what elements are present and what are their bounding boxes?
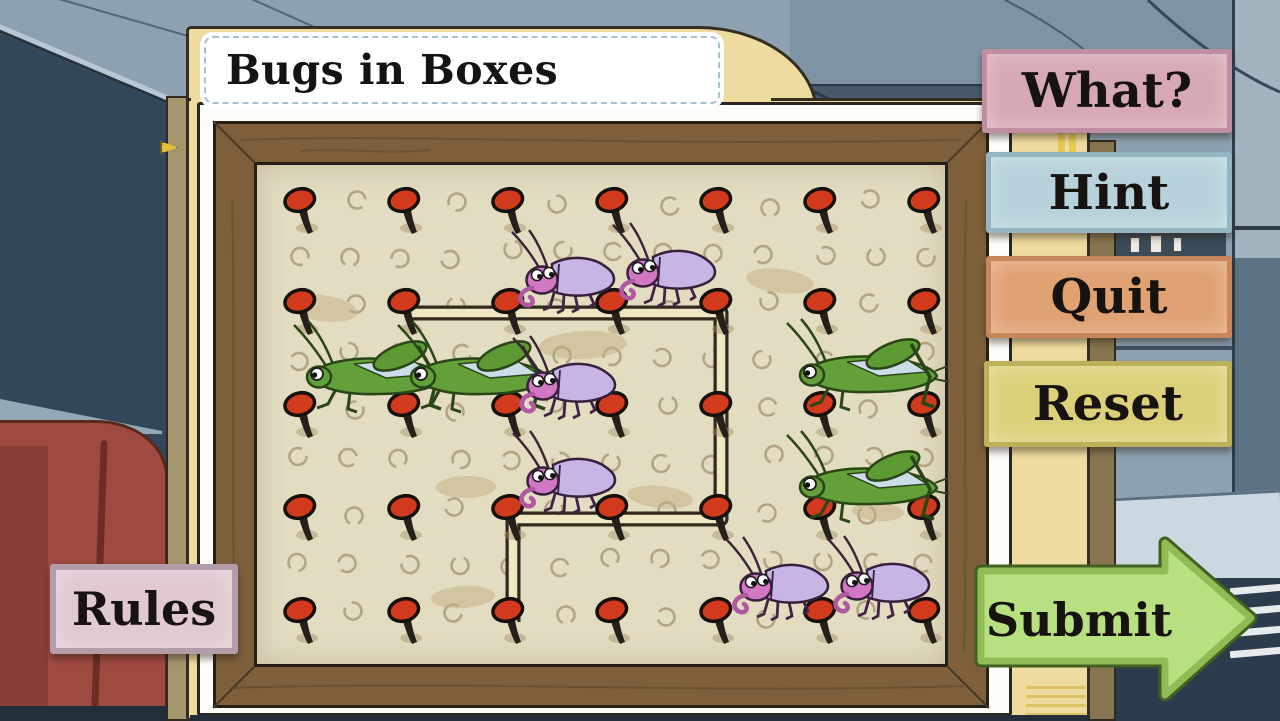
page-bottom-shadow bbox=[190, 715, 1090, 721]
wall-panel bbox=[1232, 258, 1280, 510]
shelf-tag bbox=[1150, 235, 1162, 253]
what-button[interactable]: What? bbox=[982, 49, 1232, 133]
rules-button-label: Rules bbox=[72, 582, 216, 636]
wall-panel bbox=[1232, 0, 1280, 262]
shelf-tag bbox=[1130, 237, 1140, 253]
couch-shadow bbox=[0, 446, 48, 716]
rules-button[interactable]: Rules bbox=[50, 564, 238, 654]
floor-shadow bbox=[0, 706, 192, 721]
cork-board bbox=[254, 162, 948, 667]
reset-button-label: Reset bbox=[1033, 376, 1183, 432]
panel-seam bbox=[1110, 346, 1232, 350]
reset-button[interactable]: Reset bbox=[984, 361, 1232, 447]
what-button-label: What? bbox=[1022, 63, 1192, 119]
hint-button[interactable]: Hint bbox=[986, 152, 1232, 233]
hint-button-label: Hint bbox=[1049, 165, 1170, 221]
title-plate: Bugs in Boxes bbox=[204, 36, 720, 104]
quit-button-label: Quit bbox=[1050, 269, 1167, 325]
submit-button[interactable] bbox=[973, 531, 1265, 707]
shelf-tag bbox=[1173, 237, 1182, 252]
bugs-in-boxes-game: Bugs in Boxes bbox=[0, 0, 1280, 721]
board-frame bbox=[213, 121, 989, 708]
quit-button[interactable]: Quit bbox=[986, 256, 1232, 338]
page-title: Bugs in Boxes bbox=[226, 46, 558, 94]
